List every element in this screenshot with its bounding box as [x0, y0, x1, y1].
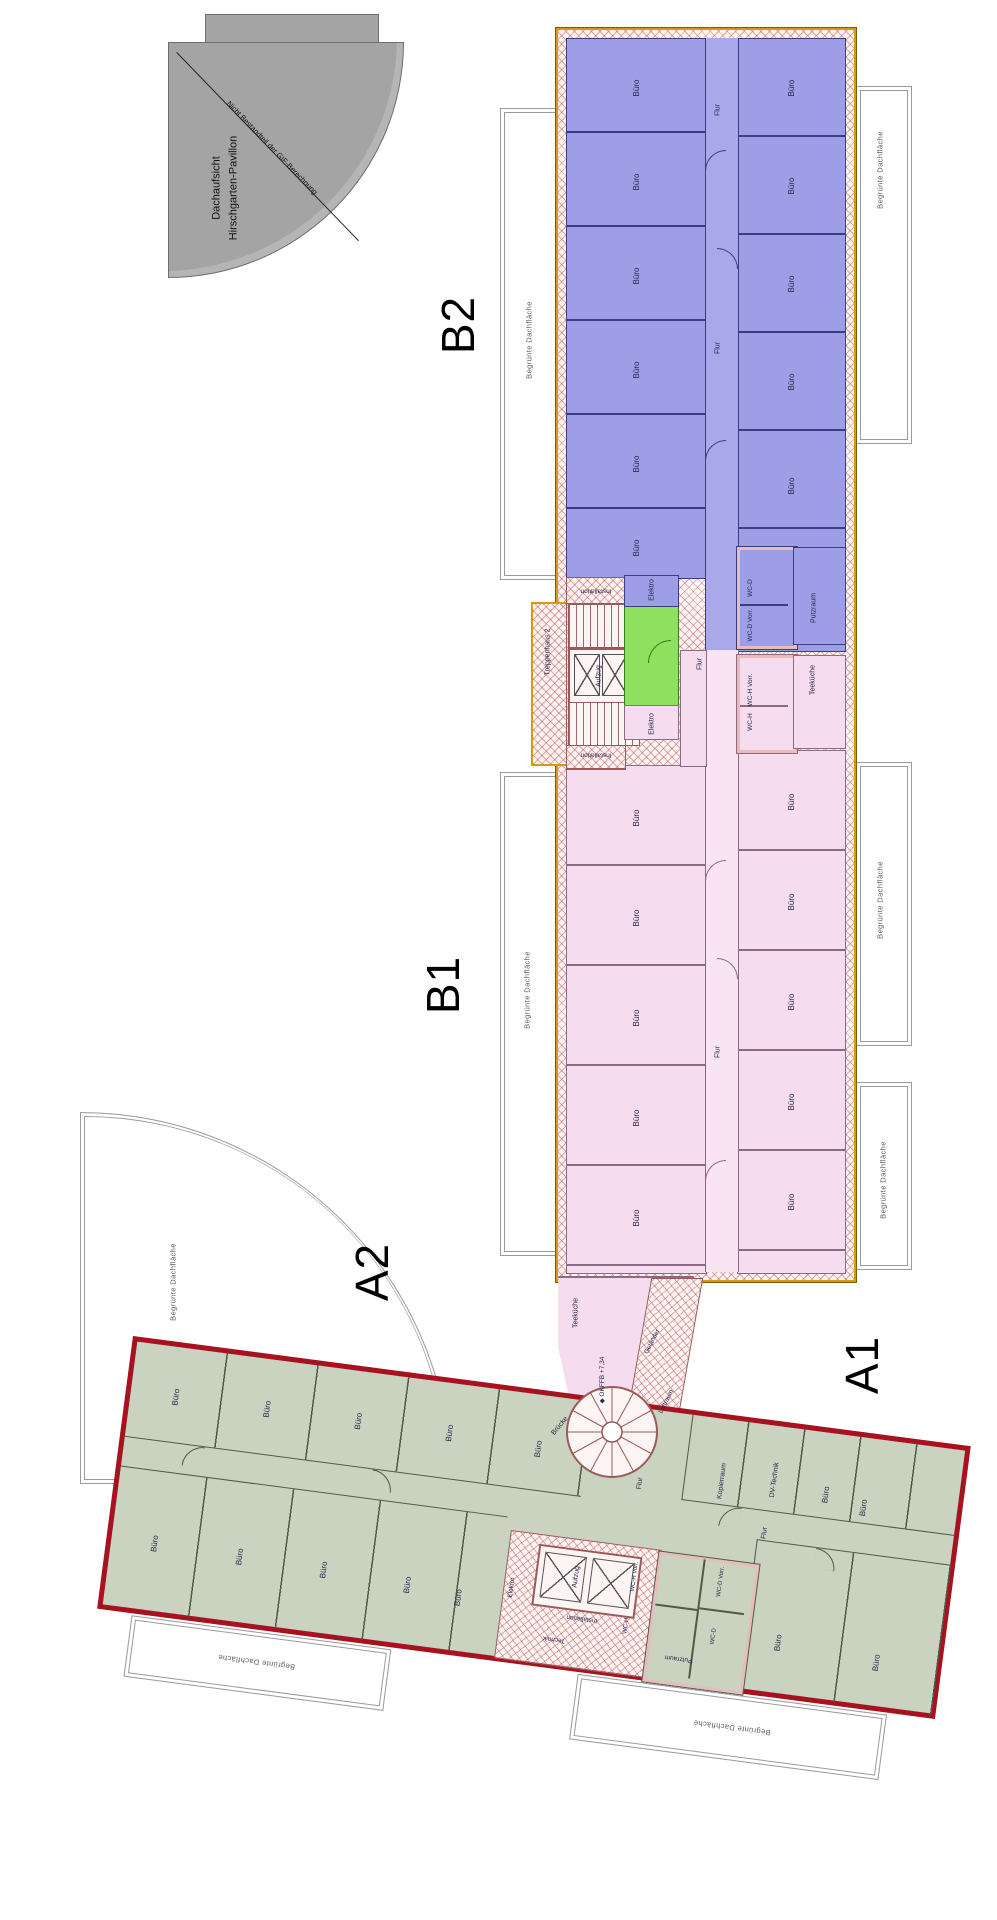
room-label-elektro: Elektro	[649, 713, 656, 735]
b2-left-room-column	[566, 38, 707, 579]
room-label-flur: Flur	[715, 104, 722, 116]
room-label-teekueche: Teeküche	[573, 1298, 580, 1328]
room-label-buero: Büro	[788, 794, 796, 811]
room-label-buero: Büro	[788, 374, 796, 391]
section-label-b2: B2	[435, 296, 481, 354]
roof-label-left-1: Begrünte Dachfläche	[525, 301, 533, 379]
roof-label-right-2: Begrünte Dachfläche	[876, 861, 884, 939]
room-label-wc-d-vorr: WC-D Vorr.	[748, 609, 755, 642]
room-label-buero: Büro	[633, 456, 641, 473]
pavilion-title-line1: Dachaufsicht	[212, 156, 223, 220]
roof-label-left-2: Begrünte Dachfläche	[523, 951, 531, 1029]
room-label-flur: Flur	[715, 342, 722, 354]
elevator-a-shaft-icon	[587, 1558, 635, 1609]
elevator-a-shaft-icon	[539, 1552, 587, 1603]
door-arc	[718, 1505, 742, 1529]
core-b-bump	[531, 602, 568, 766]
room-label-buero: Büro	[633, 268, 641, 285]
b1-teekueche-room	[793, 655, 846, 749]
section-label-b1: B1	[420, 956, 466, 1014]
room-label-buero: Büro	[788, 894, 796, 911]
room-label-teekueche: Teeküche	[810, 665, 817, 695]
section-label-a1: A1	[839, 1336, 885, 1394]
room-label-buero: Büro	[788, 1094, 796, 1111]
door-arc	[370, 1469, 394, 1493]
b2-corridor	[705, 38, 739, 650]
room-label-flur: Flur	[697, 658, 704, 670]
elevator-a	[531, 1544, 642, 1619]
room-label-buero: Büro	[788, 994, 796, 1011]
room-label-buero: Büro	[633, 1210, 641, 1227]
b2-putzraum-room	[793, 547, 846, 645]
roof-label-arc: Begrünte Dachfläche	[169, 1243, 177, 1321]
pavilion-title-line2: Hirschgarten-Pavillon	[229, 136, 240, 241]
room-label-buero: Büro	[633, 810, 641, 827]
room-label-buero: Büro	[788, 80, 796, 97]
room-label-aufzug: Aufzug	[596, 665, 603, 687]
room-label-treppenhaus-2: Treppenhaus 2	[545, 629, 552, 676]
a-bottom-right-rooms	[737, 1539, 951, 1714]
roof-label-right-1: Begrünte Dachfläche	[876, 131, 884, 209]
room-label-buero: Büro	[788, 1194, 796, 1211]
room-label-buero: Büro	[788, 478, 796, 495]
room-label-buero: Büro	[633, 1110, 641, 1127]
room-label-buero: Büro	[633, 1010, 641, 1027]
floor-plan-page: BüroBüroBüroBüroBüroTreppenhaus 1FlurKop…	[0, 0, 997, 1920]
room-label-buero: Büro	[633, 174, 641, 191]
room-label-buero: Büro	[633, 540, 641, 557]
roof-label-right-3: Begrünte Dachfläche	[879, 1141, 887, 1219]
spiral-stair	[564, 1384, 660, 1480]
room-label-installation: Installation	[580, 587, 611, 594]
room-label-buero: Büro	[788, 178, 796, 195]
room-label-flur: Flur	[760, 1527, 769, 1540]
room-label-installation: Installation	[580, 751, 611, 758]
room-label-buero: Büro	[633, 910, 641, 927]
room-label-wc-h: WC-H	[748, 713, 755, 731]
b2-wc-divider	[740, 604, 788, 606]
room-label-putzraum: Putzraum	[811, 593, 818, 623]
room-label-elektro: Elektro	[649, 579, 656, 601]
room-label-buero: Büro	[633, 80, 641, 97]
level-marker-okffb: ◆ OKFFB +7,34	[600, 1357, 607, 1404]
room-label-buero: Büro	[788, 276, 796, 293]
room-label-flur: Flur	[715, 1046, 722, 1058]
door-arc	[182, 1445, 206, 1469]
room-label-wc-d: WC-D	[748, 579, 755, 597]
room-label-buero: Büro	[633, 362, 641, 379]
section-label-a2: A2	[349, 1243, 395, 1301]
room-label-wc-h-vorr: WC-H Vorr.	[748, 674, 755, 707]
